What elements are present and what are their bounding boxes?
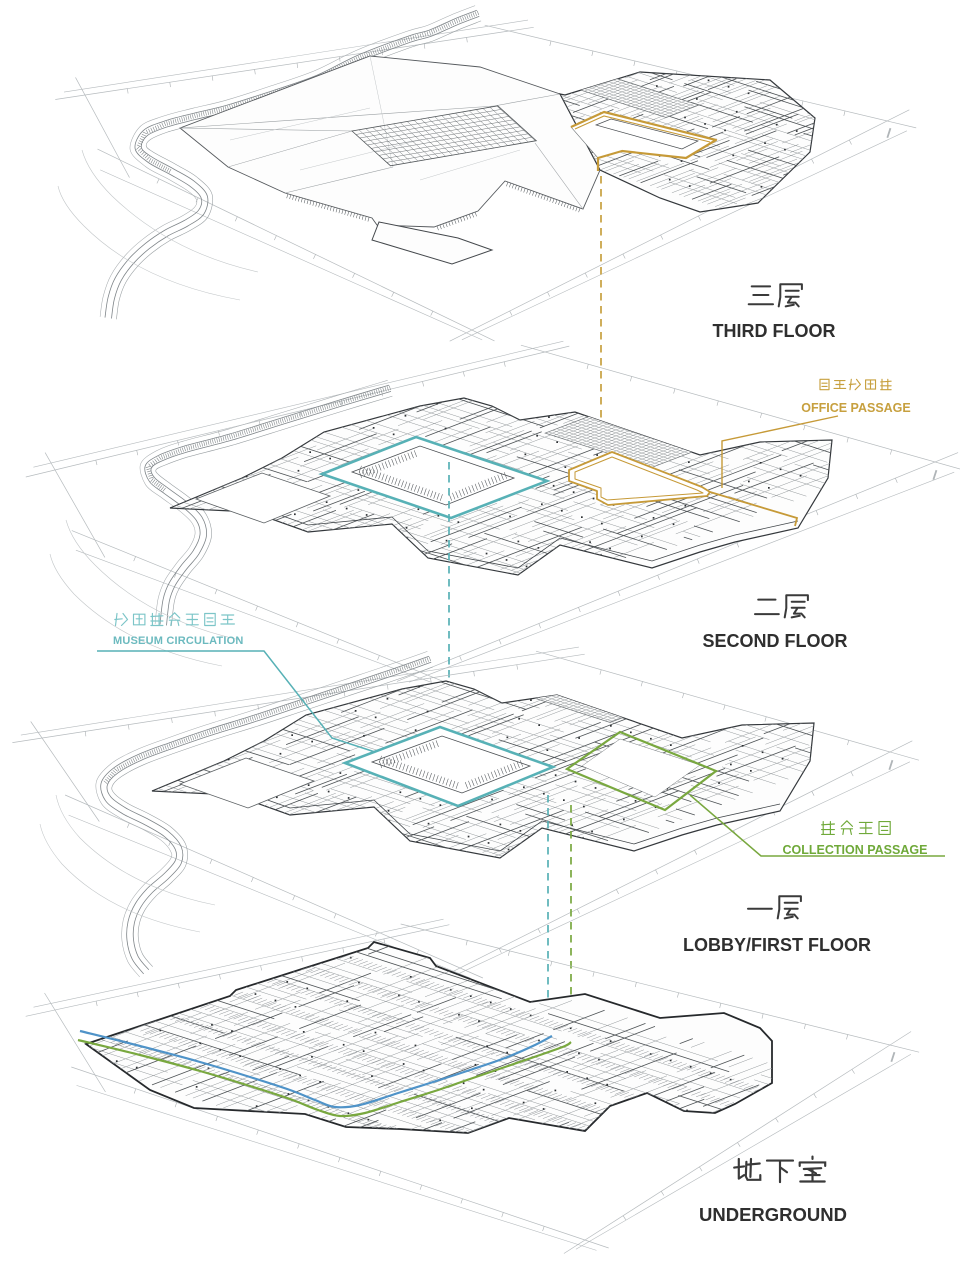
- svg-text:LOBBY/FIRST FLOOR: LOBBY/FIRST FLOOR: [683, 935, 871, 955]
- svg-text:UNDERGROUND: UNDERGROUND: [699, 1204, 847, 1225]
- svg-text:SECOND FLOOR: SECOND FLOOR: [702, 631, 847, 651]
- svg-text:OFFICE PASSAGE: OFFICE PASSAGE: [801, 401, 911, 415]
- svg-text:MUSEUM CIRCULATION: MUSEUM CIRCULATION: [113, 635, 244, 647]
- svg-text:COLLECTION PASSAGE: COLLECTION PASSAGE: [783, 843, 928, 857]
- svg-text:THIRD FLOOR: THIRD FLOOR: [713, 321, 836, 341]
